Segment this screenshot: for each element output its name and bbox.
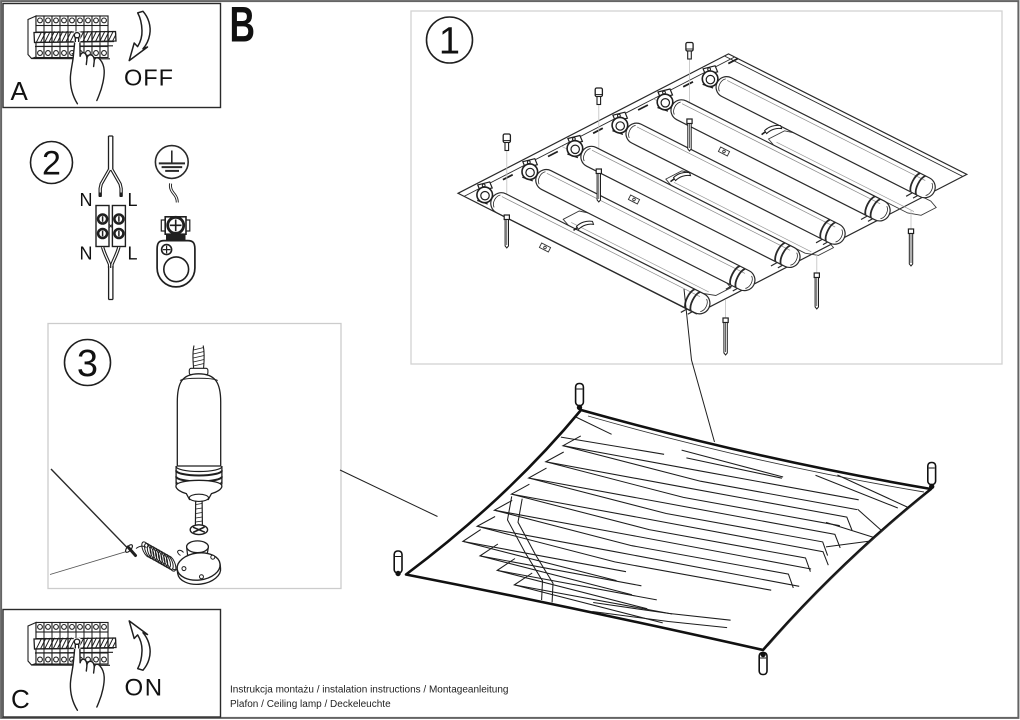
- svg-text:2: 2: [42, 145, 61, 183]
- svg-text:B: B: [230, 0, 256, 53]
- svg-text:C: C: [11, 684, 30, 714]
- svg-text:3: 3: [77, 343, 98, 385]
- svg-text:L: L: [127, 244, 137, 264]
- svg-text:ON: ON: [125, 675, 164, 702]
- svg-text:L: L: [127, 190, 137, 210]
- svg-text:N: N: [80, 190, 93, 210]
- svg-text:Instrukcja montażu / instalati: Instrukcja montażu / instalation instruc…: [230, 685, 509, 696]
- svg-text:A: A: [11, 76, 29, 106]
- svg-text:Plafon / Ceiling lamp / Deckel: Plafon / Ceiling lamp / Deckeleuchte: [230, 699, 391, 710]
- svg-text:N: N: [80, 244, 93, 264]
- svg-text:OFF: OFF: [124, 65, 174, 91]
- svg-text:1: 1: [439, 21, 460, 63]
